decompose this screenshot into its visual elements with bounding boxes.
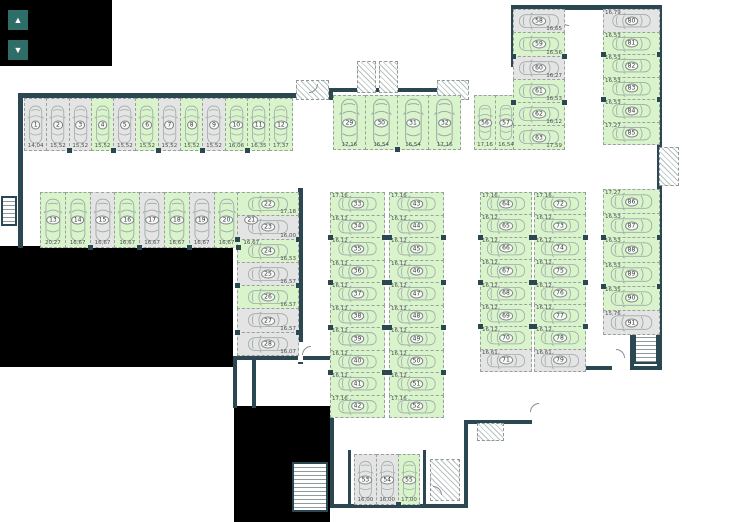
stall-number: 54 (380, 475, 394, 484)
parking-stall-41[interactable]: 4116,12 (330, 372, 385, 396)
parking-stall-17[interactable]: 1716,67 (139, 192, 165, 248)
stall-area-label: 17,00 (399, 497, 420, 503)
floor-plan: ▲ ▼ 114,04 (0, 0, 754, 522)
vent-shaft (477, 423, 504, 441)
stall-area-label: 16,12 (391, 261, 407, 267)
stall-area-label: 16,53 (605, 33, 621, 39)
stall-number: 69 (499, 311, 513, 320)
stall-area-label: 16,67 (115, 240, 139, 246)
parking-stall-88[interactable]: 8816,53 (603, 237, 660, 262)
stall-number: 1 (31, 120, 41, 129)
stall-area-label: 16,12 (536, 238, 552, 244)
stall-number: 30 (374, 118, 388, 127)
stall-number: 13 (46, 216, 60, 225)
parking-stall-36[interactable]: 3616,12 (330, 260, 385, 284)
stall-number: 28 (261, 339, 275, 348)
stall-area-label: 15,52 (70, 143, 91, 149)
parking-stall-44[interactable]: 4416,12 (389, 215, 444, 239)
stall-area-label: 16,12 (391, 373, 407, 379)
parking-stall-75[interactable]: 7516,12 (534, 259, 586, 282)
stall-area-label: 16,12 (391, 216, 407, 222)
parking-stall-58[interactable]: 5816,65 (513, 9, 565, 33)
wall (233, 356, 237, 408)
stall-number: 85 (625, 129, 639, 138)
stall-area-label: 15,52 (114, 143, 135, 149)
parking-stall-71[interactable]: 7116,61 (480, 349, 532, 372)
stall-number: 58 (532, 17, 546, 26)
stall-number: 80 (625, 16, 639, 25)
stall-area-label: 16,53 (280, 256, 296, 262)
wall (630, 366, 662, 370)
stall-number: 9 (209, 120, 219, 129)
stall-area-label: 14,04 (25, 143, 46, 149)
stall-area-label: 17,16 (536, 193, 552, 199)
parking-stall-65[interactable]: 6516,12 (480, 214, 532, 237)
stall-area-label: 16,54 (398, 142, 429, 148)
stall-number: 74 (553, 244, 567, 253)
parking-stall-51[interactable]: 5116,12 (389, 372, 444, 396)
stall-area-label: 16,12 (536, 260, 552, 266)
stall-number: 10 (229, 120, 243, 129)
stall-number: 6 (142, 120, 152, 129)
parking-stall-81[interactable]: 8116,53 (603, 32, 660, 56)
stall-area-label: 16,06 (226, 143, 247, 149)
parking-stall-49[interactable]: 4916,12 (389, 327, 444, 351)
parking-stall-25[interactable]: 2516,57 (237, 262, 299, 286)
stall-number: 76 (553, 289, 567, 298)
stall-area-label: 16,61 (482, 350, 498, 356)
stall-number: 37 (351, 289, 365, 298)
stall-number: 34 (351, 222, 365, 231)
stall-area-label: 17,59 (546, 143, 562, 149)
parking-stall-90[interactable]: 9016,35 (603, 286, 660, 311)
parking-stall-77[interactable]: 7716,12 (534, 304, 586, 327)
stall-number: 12 (274, 120, 288, 129)
stall-number: 22 (261, 200, 275, 209)
stall-number: 47 (410, 289, 424, 298)
floor-down-button[interactable]: ▼ (8, 40, 28, 60)
stall-number: 48 (410, 312, 424, 321)
parking-stall-56[interactable]: 5617,16 (474, 95, 496, 150)
stall-number: 24 (261, 246, 275, 255)
stall-group-64-71: 6417,16 6516,12 6616,12 6716,12 (480, 192, 532, 372)
stall-group-53-55: 5316,00 5416,00 5517,00 (354, 454, 420, 505)
parking-stall-76[interactable]: 7616,12 (534, 282, 586, 305)
stall-area-label: 16,00 (377, 497, 398, 503)
parking-stall-83[interactable]: 8316,53 (603, 77, 660, 101)
floor-up-button[interactable]: ▲ (8, 10, 28, 30)
parking-stall-3[interactable]: 315,52 (69, 98, 92, 151)
stall-number: 87 (625, 221, 639, 230)
parking-stall-67[interactable]: 6716,12 (480, 259, 532, 282)
parking-stall-82[interactable]: 8216,53 (603, 54, 660, 78)
stall-area-label: 20,27 (41, 240, 65, 246)
parking-stall-87[interactable]: 8716,53 (603, 213, 660, 238)
stall-area-label: 16,12 (482, 238, 498, 244)
stall-number: 71 (499, 356, 513, 365)
stall-number: 43 (410, 199, 424, 208)
stall-area-label: 16,35 (248, 143, 269, 149)
parking-stall-14[interactable]: 1416,67 (65, 192, 91, 248)
stall-area-label: 16,67 (165, 240, 189, 246)
stall-area-label: 15,52 (92, 143, 113, 149)
stall-area-label: 16,56 (546, 50, 562, 56)
stall-area-label: 17,16 (332, 193, 348, 199)
parking-stall-27[interactable]: 2716,57 (237, 308, 299, 332)
parking-stall-5[interactable]: 515,52 (113, 98, 136, 151)
stall-number: 29 (343, 118, 357, 127)
parking-stall-29[interactable]: 2917,16 (333, 95, 366, 150)
stall-group-43-52: 4317,16 4416,12 4516,12 4616,12 (389, 192, 444, 418)
stall-number: 35 (351, 244, 365, 253)
stall-area-label: 16,57 (280, 279, 296, 285)
parking-stall-84[interactable]: 8416,53 (603, 99, 660, 123)
parking-stall-32[interactable]: 3217,16 (428, 95, 461, 150)
parking-stall-89[interactable]: 8916,53 (603, 262, 660, 287)
stall-number: 50 (410, 357, 424, 366)
stall-number: 26 (261, 293, 275, 302)
parking-stall-34[interactable]: 3416,12 (330, 215, 385, 239)
stall-group-29-32: 2917,16 3016,54 3116,54 3217,16 (333, 95, 461, 150)
stairs-icon (292, 462, 328, 512)
stall-area-label: 16,61 (536, 350, 552, 356)
stall-area-label: 16,12 (482, 215, 498, 221)
stall-number: 52 (410, 402, 424, 411)
stall-area-label: 16,53 (605, 238, 621, 244)
parking-stall-52[interactable]: 5217,16 (389, 395, 444, 419)
vent-shaft (357, 61, 376, 93)
stall-area-label: 16,12 (332, 306, 348, 312)
stall-area-label: 16,57 (280, 326, 296, 332)
stall-area-label: 16,65 (546, 26, 562, 32)
stall-number: 42 (351, 402, 365, 411)
stall-area-label: 16,12 (391, 328, 407, 334)
parking-stall-50[interactable]: 5016,12 (389, 350, 444, 374)
parking-stall-4[interactable]: 415,52 (91, 98, 114, 151)
stall-area-label: 17,37 (270, 143, 291, 149)
parking-stall-22[interactable]: 2217,18 (237, 192, 299, 216)
parking-stall-62[interactable]: 6216,12 (513, 102, 565, 126)
stall-group-58-63: 5816,65 5916,56 6016,27 6116,53 (513, 9, 565, 150)
stall-area-label: 17,16 (482, 193, 498, 199)
parking-stall-16[interactable]: 1616,67 (114, 192, 140, 248)
parking-stall-54[interactable]: 5416,00 (376, 454, 399, 505)
stall-number: 20 (220, 216, 234, 225)
parking-stall-61[interactable]: 6116,53 (513, 79, 565, 103)
stall-area-label: 17,16 (475, 142, 495, 148)
parking-stall-1[interactable]: 114,04 (24, 98, 47, 151)
parking-stall-79[interactable]: 7916,61 (534, 349, 586, 372)
stall-area-label: 16,12 (332, 261, 348, 267)
parking-stall-13[interactable]: 1320,27 (40, 192, 66, 248)
stall-area-label: 16,12 (546, 119, 562, 125)
stall-number: 44 (410, 222, 424, 231)
stall-number: 19 (195, 216, 209, 225)
stall-area-label: 16,00 (355, 497, 376, 503)
stall-number: 25 (261, 270, 275, 279)
stall-area-label: 16,53 (605, 78, 621, 84)
stall-area-label: 15,52 (181, 143, 202, 149)
stall-number: 62 (532, 110, 546, 119)
stall-area-label: 17,16 (391, 193, 407, 199)
stall-number: 63 (532, 133, 546, 142)
stall-number: 70 (499, 334, 513, 343)
stall-number: 68 (499, 289, 513, 298)
stall-number: 16 (120, 216, 134, 225)
parking-stall-91[interactable]: 9115,76 (603, 310, 660, 335)
parking-stall-45[interactable]: 4516,12 (389, 237, 444, 261)
stall-area-label: 16,12 (482, 327, 498, 333)
stall-area-label: 17,16 (429, 142, 460, 148)
stall-number: 66 (499, 244, 513, 253)
stall-number: 14 (71, 216, 85, 225)
parking-stall-80[interactable]: 8016,79 (603, 9, 660, 33)
stall-number: 83 (625, 84, 639, 93)
parking-stall-28[interactable]: 2816,07 (237, 332, 299, 356)
parking-stall-66[interactable]: 6616,12 (480, 237, 532, 260)
parking-stall-6[interactable]: 615,52 (135, 98, 158, 151)
stall-area-label: 16,53 (605, 263, 621, 269)
parking-stall-85[interactable]: 8517,27 (603, 122, 660, 146)
parking-stall-78[interactable]: 7816,12 (534, 326, 586, 349)
stall-area-label: 16,12 (391, 306, 407, 312)
wall (423, 450, 426, 508)
stall-area-label: 16,67 (190, 240, 214, 246)
door-arc (302, 346, 320, 364)
stall-area-label: 15,52 (159, 143, 180, 149)
stall-number: 56 (478, 118, 492, 127)
stall-number: 3 (75, 120, 85, 129)
parking-stall-55[interactable]: 5517,00 (398, 454, 421, 505)
stall-area-label: 15,52 (136, 143, 157, 149)
stall-number: 32 (438, 118, 452, 127)
stall-number: 75 (553, 266, 567, 275)
stall-number: 8 (187, 120, 197, 129)
parking-stall-59[interactable]: 5916,56 (513, 32, 565, 56)
stall-number: 46 (410, 267, 424, 276)
stall-area-label: 16,12 (332, 238, 348, 244)
parking-stall-46[interactable]: 4616,12 (389, 260, 444, 284)
stall-group-13-21: 1320,27 1416,67 1516,67 1616,67 (40, 192, 264, 248)
stall-area-label: 16,12 (332, 216, 348, 222)
stall-number: 72 (553, 199, 567, 208)
stall-number: 40 (351, 357, 365, 366)
parking-stall-70[interactable]: 7016,12 (480, 326, 532, 349)
stall-area-label: 16,00 (280, 233, 296, 239)
stall-number: 45 (410, 244, 424, 253)
stall-number: 41 (351, 379, 365, 388)
stall-group-1-12: 114,04 215,52 315,52 415,52 (24, 98, 293, 151)
stall-area-label: 16,53 (546, 96, 562, 102)
stall-area-label: 17,27 (605, 123, 621, 129)
parking-stall-2[interactable]: 215,52 (46, 98, 69, 151)
stall-number: 39 (351, 334, 365, 343)
stall-area-label: 17,16 (391, 396, 407, 402)
wall (464, 420, 468, 508)
stall-number: 73 (553, 222, 567, 231)
stall-area-label: 16,12 (536, 283, 552, 289)
parking-stall-31[interactable]: 3116,54 (397, 95, 430, 150)
parking-stall-74[interactable]: 7416,12 (534, 237, 586, 260)
stall-area-label: 16,53 (605, 100, 621, 106)
parking-stall-8[interactable]: 815,52 (180, 98, 203, 151)
parking-stall-72[interactable]: 7217,16 (534, 192, 586, 215)
stall-area-label: 16,12 (536, 327, 552, 333)
parking-stall-39[interactable]: 3916,12 (330, 327, 385, 351)
stall-area-label: 15,52 (203, 143, 224, 149)
stall-number: 33 (351, 199, 365, 208)
parking-stall-37[interactable]: 3716,12 (330, 282, 385, 306)
stall-area-label: 16,54 (496, 142, 516, 148)
stall-area-label: 16,12 (332, 328, 348, 334)
stall-area-label: 17,16 (332, 396, 348, 402)
parking-stall-10[interactable]: 1016,06 (225, 98, 248, 151)
stall-number: 91 (625, 318, 639, 327)
stall-number: 65 (499, 222, 513, 231)
stall-number: 59 (532, 40, 546, 49)
stall-number: 67 (499, 266, 513, 275)
parking-stall-18[interactable]: 1816,67 (164, 192, 190, 248)
stall-number: 88 (625, 245, 639, 254)
stall-number: 79 (553, 356, 567, 365)
stall-area-label: 16,27 (546, 73, 562, 79)
stall-area-label: 16,57 (280, 302, 296, 308)
stall-number: 57 (499, 118, 513, 127)
stall-number: 31 (406, 118, 420, 127)
stall-area-label: 16,67 (239, 240, 263, 246)
stall-number: 89 (625, 270, 639, 279)
parking-stall-68[interactable]: 6816,12 (480, 282, 532, 305)
stall-area-label: 16,53 (605, 55, 621, 61)
wall (348, 450, 351, 508)
stall-area-label: 16,79 (605, 10, 621, 16)
parking-stall-42[interactable]: 4217,16 (330, 395, 385, 419)
parking-stall-43[interactable]: 4317,16 (389, 192, 444, 216)
parking-stall-48[interactable]: 4816,12 (389, 305, 444, 329)
stall-number: 82 (625, 61, 639, 70)
stall-number: 36 (351, 267, 365, 276)
stall-number: 38 (351, 312, 365, 321)
parking-stall-30[interactable]: 3016,54 (365, 95, 398, 150)
stall-area-label: 16,35 (605, 287, 621, 293)
stall-area-label: 16,12 (391, 238, 407, 244)
parking-stall-40[interactable]: 4016,12 (330, 350, 385, 374)
stall-area-label: 17,16 (334, 142, 365, 148)
stall-area-label: 16,12 (332, 283, 348, 289)
parking-stall-69[interactable]: 6916,12 (480, 304, 532, 327)
stall-number: 15 (96, 216, 110, 225)
stall-area-label: 16,07 (280, 349, 296, 355)
parking-stall-15[interactable]: 1516,67 (90, 192, 116, 248)
stall-area-label: 17,18 (280, 209, 296, 215)
stall-area-label: 17,27 (605, 190, 621, 196)
stall-number: 27 (261, 316, 275, 325)
stall-number: 61 (532, 87, 546, 96)
stall-number: 51 (410, 379, 424, 388)
stall-area-label: 16,12 (482, 305, 498, 311)
wall (330, 406, 334, 508)
stall-number: 23 (261, 223, 275, 232)
stall-number: 84 (625, 106, 639, 115)
parking-stall-38[interactable]: 3816,12 (330, 305, 385, 329)
door-arc (530, 403, 548, 421)
stall-area-label: 15,52 (47, 143, 68, 149)
stall-area-label: 16,53 (605, 214, 621, 220)
stall-number: 49 (410, 334, 424, 343)
stall-number: 77 (553, 311, 567, 320)
door-arc (607, 349, 625, 367)
stall-area-label: 16,12 (391, 351, 407, 357)
parking-stall-33[interactable]: 3317,16 (330, 192, 385, 216)
parking-stall-86[interactable]: 8617,27 (603, 189, 660, 214)
stall-number: 60 (532, 63, 546, 72)
parking-stall-9[interactable]: 915,52 (202, 98, 225, 151)
stall-area-label: 16,12 (536, 215, 552, 221)
parking-stall-73[interactable]: 7316,12 (534, 214, 586, 237)
stall-number: 86 (625, 197, 639, 206)
parking-stall-47[interactable]: 4716,12 (389, 282, 444, 306)
parking-stall-35[interactable]: 3516,12 (330, 237, 385, 261)
stall-number: 81 (625, 39, 639, 48)
stall-area-label: 15,76 (605, 311, 621, 317)
stall-number: 90 (625, 294, 639, 303)
stall-number: 11 (252, 120, 266, 129)
void-region-left (0, 246, 233, 367)
stall-number: 7 (165, 120, 175, 129)
stall-area-label: 16,67 (66, 240, 90, 246)
parking-stall-11[interactable]: 1116,35 (247, 98, 270, 151)
stall-area-label: 16,12 (536, 305, 552, 311)
stall-area-label: 16,12 (482, 283, 498, 289)
stall-number: 5 (120, 120, 130, 129)
stall-group-80-85: 8016,79 8116,53 8216,53 8316,53 (603, 9, 660, 145)
parking-stall-19[interactable]: 1916,67 (189, 192, 215, 248)
parking-stall-60[interactable]: 6016,27 (513, 56, 565, 80)
wall (252, 356, 256, 408)
stall-number: 78 (553, 334, 567, 343)
stall-area-label: 16,54 (366, 142, 397, 148)
stall-group-86-91: 8617,27 8716,53 8816,53 8916,53 (603, 189, 660, 335)
vent-shaft (659, 147, 679, 186)
vent-shaft (379, 61, 398, 93)
stall-number: 55 (402, 475, 416, 484)
stall-number: 18 (170, 216, 184, 225)
stall-area-label: 16,12 (391, 283, 407, 289)
parking-stall-64[interactable]: 6417,16 (480, 192, 532, 215)
stall-area-label: 16,12 (482, 260, 498, 266)
stall-number: 4 (98, 120, 108, 129)
wall (234, 356, 334, 360)
stall-number: 2 (53, 120, 63, 129)
stall-number: 53 (359, 475, 373, 484)
parking-stall-12[interactable]: 1217,37 (269, 98, 292, 151)
parking-stall-53[interactable]: 5316,00 (354, 454, 377, 505)
parking-stall-7[interactable]: 715,52 (158, 98, 181, 151)
stall-group-33-42: 3317,16 3416,12 3516,12 3616,12 (330, 192, 385, 418)
parking-stall-26[interactable]: 2616,57 (237, 285, 299, 309)
stall-group-72-79: 7217,16 7316,12 7416,12 7516,12 (534, 192, 586, 372)
stall-area-label: 16,67 (140, 240, 164, 246)
stall-area-label: 16,67 (91, 240, 115, 246)
stall-number: 17 (145, 216, 159, 225)
stall-number: 21 (244, 216, 258, 225)
wall (18, 93, 23, 248)
stall-area-label: 16,12 (332, 373, 348, 379)
stairs-icon (1, 196, 17, 226)
stall-area-label: 16,12 (332, 351, 348, 357)
parking-stall-63[interactable]: 6317,59 (513, 125, 565, 149)
stall-number: 64 (499, 199, 513, 208)
